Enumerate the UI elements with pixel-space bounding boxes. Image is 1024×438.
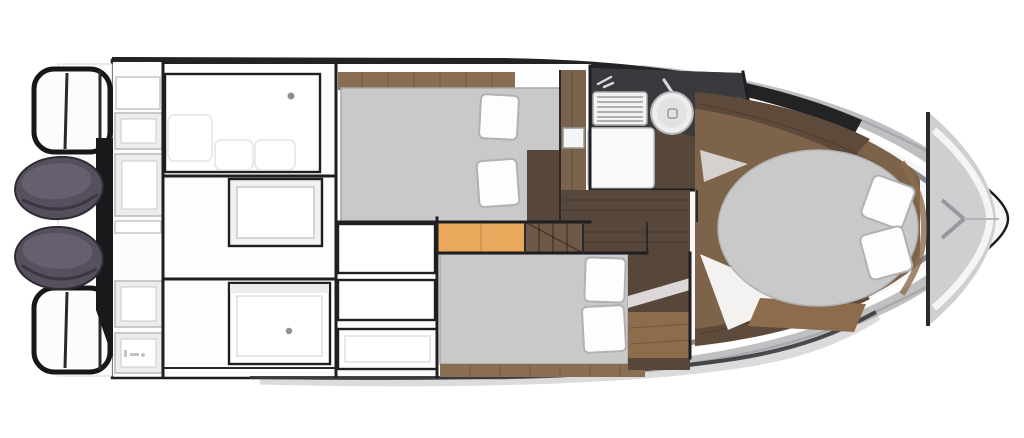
stbd-bench bbox=[628, 312, 690, 358]
stbd-berth-pillow-2 bbox=[582, 305, 626, 353]
cockpit bbox=[163, 62, 340, 377]
mid-locker-3 bbox=[338, 329, 437, 369]
port-berth-pillow-2 bbox=[476, 159, 519, 208]
bench-panel-2-inner bbox=[121, 119, 156, 143]
bench-panel-3-inner bbox=[122, 161, 157, 209]
mid-cabin-port bbox=[338, 70, 586, 230]
corridor-floor-2 bbox=[583, 222, 690, 254]
boat-floorplan-image bbox=[0, 0, 1024, 438]
transom-plate bbox=[96, 138, 114, 310]
aft-bench-column bbox=[113, 62, 164, 376]
corridor-floor-1 bbox=[560, 190, 690, 223]
rail-strut-top-1 bbox=[65, 73, 67, 149]
bench-panel-5-inner bbox=[121, 287, 156, 321]
rail-strut-bot-1 bbox=[65, 292, 67, 368]
plank-strip-box bbox=[563, 128, 584, 148]
floorplan-svg bbox=[0, 0, 1024, 438]
midship-lockers bbox=[338, 224, 437, 369]
cockpit-sunpad bbox=[165, 74, 320, 172]
cockpit-locker-bottom-band bbox=[230, 284, 329, 293]
port-berth-pillow-1 bbox=[479, 94, 519, 140]
mid-locker-1 bbox=[338, 224, 435, 273]
stbd-berth-pillow-1 bbox=[584, 257, 626, 302]
bench-panel-4 bbox=[115, 221, 161, 233]
shower-grate bbox=[593, 92, 647, 125]
bench-panel-1 bbox=[116, 77, 160, 109]
stbd-footboard-wood bbox=[440, 364, 645, 377]
cockpit-locker-bottom bbox=[229, 283, 330, 364]
shower-pan bbox=[588, 128, 654, 188]
table-socket-dot-1 bbox=[288, 93, 295, 100]
port-wardrobe bbox=[527, 150, 560, 222]
mid-cabin-starboard bbox=[440, 253, 690, 377]
cockpit-locker-top-inner bbox=[237, 187, 314, 238]
mid-locker-2 bbox=[338, 280, 435, 320]
table-socket-dot-2 bbox=[286, 328, 292, 334]
